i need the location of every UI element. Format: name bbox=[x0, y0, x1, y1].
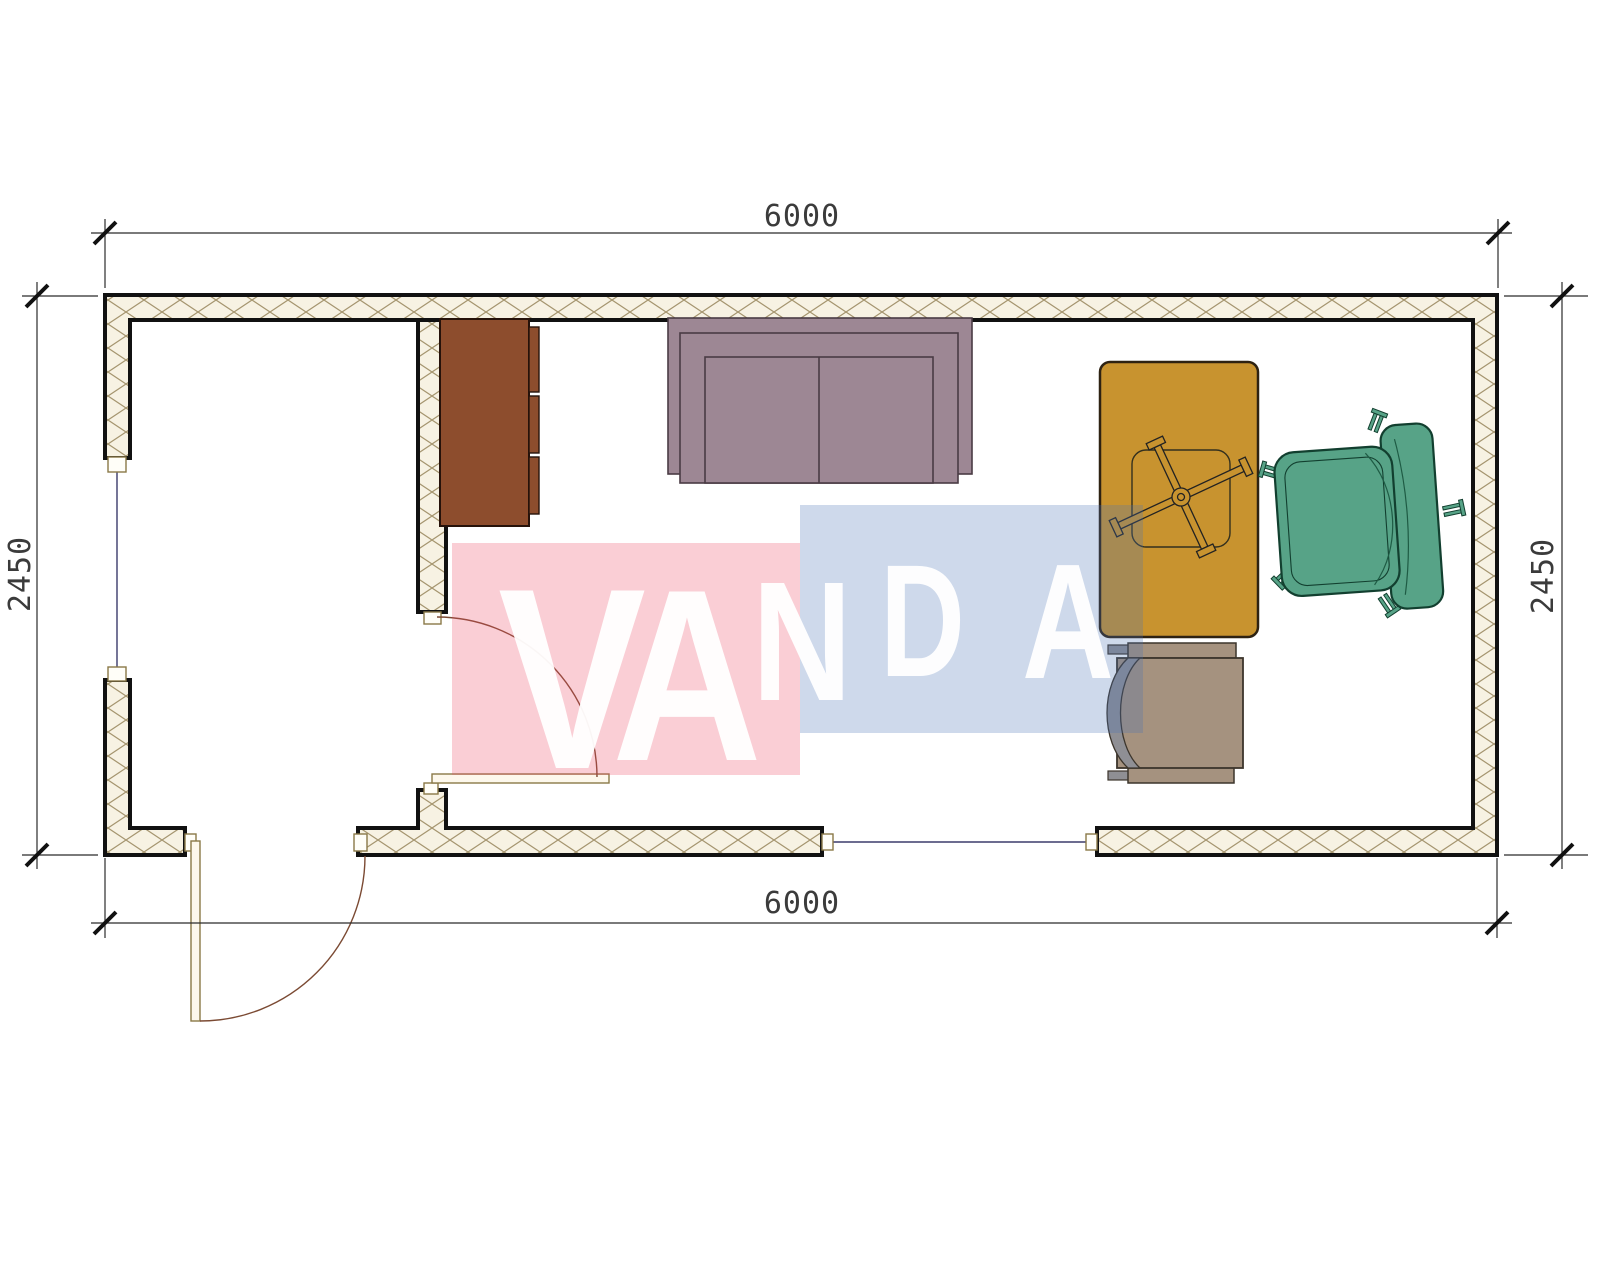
cabinet-door-strip bbox=[529, 327, 539, 392]
dimension-bottom: 6000 bbox=[91, 858, 1512, 938]
door-swing-arc bbox=[200, 856, 365, 1021]
dimension-top: 6000 bbox=[91, 199, 1512, 288]
watermark-letter: D bbox=[880, 531, 965, 710]
window-jamb bbox=[108, 457, 126, 472]
window-jamb bbox=[822, 834, 833, 850]
entry-door bbox=[185, 834, 367, 1021]
floor-plan-canvas: 6000 6000 2450 2450 VANDA bbox=[0, 0, 1600, 1280]
door-jamb bbox=[424, 783, 438, 794]
dimension-label-left: 2450 bbox=[3, 536, 38, 612]
dimension-label-top: 6000 bbox=[764, 199, 840, 234]
door-jamb bbox=[354, 834, 367, 851]
cabinet-door-strip bbox=[529, 457, 539, 514]
window-left bbox=[108, 457, 126, 681]
dimension-label-right: 2450 bbox=[1526, 538, 1561, 614]
door-leaf bbox=[191, 841, 200, 1021]
watermark-letter: A bbox=[1022, 530, 1114, 713]
chair-bottom-rail bbox=[1128, 767, 1234, 783]
dimension-right: 2450 bbox=[1504, 282, 1588, 869]
dimension-left: 2450 bbox=[3, 282, 98, 869]
door-jamb bbox=[424, 612, 441, 624]
cabinet-door-strip bbox=[529, 396, 539, 453]
wall-bottom-left-corner bbox=[105, 680, 185, 855]
chair-arm-stub bbox=[1108, 771, 1130, 780]
armchair-leg bbox=[1442, 499, 1466, 519]
sofa bbox=[668, 318, 972, 483]
watermark-letter: A bbox=[612, 538, 762, 812]
watermark-letter: N bbox=[752, 547, 852, 737]
watermark-text: VANDA bbox=[498, 530, 1114, 823]
cabinet bbox=[440, 319, 539, 526]
dimension-label-bottom: 6000 bbox=[764, 886, 840, 921]
window-bottom bbox=[822, 834, 1097, 850]
armchair bbox=[1254, 402, 1472, 626]
watermark: VANDA bbox=[452, 505, 1143, 823]
chair-top-rail bbox=[1128, 643, 1236, 658]
window-jamb bbox=[1086, 834, 1097, 850]
cabinet-body bbox=[440, 319, 529, 526]
window-jamb bbox=[108, 667, 126, 681]
